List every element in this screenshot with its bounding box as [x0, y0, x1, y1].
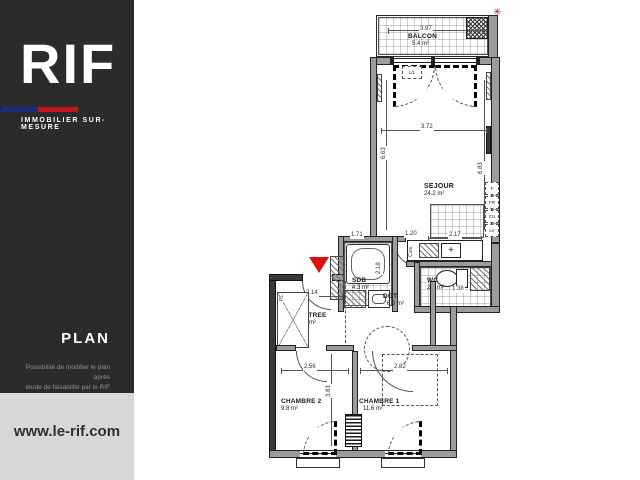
- partition-dashed: [345, 281, 346, 343]
- dim-chambre1-width: 2.82: [393, 364, 407, 371]
- wall-segment: [491, 243, 500, 313]
- website-url: www.le-rif.com: [0, 423, 134, 440]
- sidebar-footer: www.le-rif.com: [0, 393, 134, 480]
- room-area-dgt: 6.3 m²: [387, 301, 404, 307]
- room-label-chambre2: CHAMBRE 2: [281, 398, 321, 405]
- wall-segment: [370, 57, 377, 243]
- bay-window: [392, 58, 478, 63]
- counter-drainer: [419, 243, 439, 258]
- window-post: [476, 57, 480, 65]
- note-line-2: étude de faisabilité par le RIF: [25, 384, 110, 391]
- room-label-dgt: DGT: [383, 293, 397, 300]
- wall-segment: [269, 450, 457, 458]
- dim-sejour-width: 3.72: [420, 124, 434, 131]
- window-post: [390, 57, 394, 65]
- duct-hatch: [470, 267, 490, 291]
- wall-segment: [326, 345, 354, 351]
- flag-red-segment: [38, 107, 78, 112]
- page: RIF IMMOBILIER SUR-MESURE PLAN Possibili…: [0, 0, 640, 480]
- wall-segment: [450, 306, 457, 458]
- window-sill: [381, 458, 425, 468]
- wall-segment: [450, 306, 500, 313]
- wall-hatch: [377, 74, 382, 102]
- room-label-chambre1: CHAMBRE 1: [359, 398, 399, 405]
- room-area-chambre2: 9.8 m²: [281, 406, 298, 412]
- sidebar: RIF IMMOBILIER SUR-MESURE PLAN Possibili…: [0, 0, 134, 393]
- french-flag-stripe: [0, 107, 134, 112]
- north-indicator-icon: ✳: [493, 7, 501, 18]
- window-post: [431, 57, 435, 65]
- casement-swing-arc: [303, 421, 337, 455]
- dim-balcony-width: 3.97: [419, 26, 433, 33]
- wall-segment: [276, 345, 296, 351]
- flag-blue-segment: [0, 107, 38, 112]
- casement-swing-arc: [388, 421, 422, 455]
- dim-chambre2-width: 2.56: [303, 364, 317, 371]
- room-label-sdb: SDB: [352, 277, 366, 284]
- door-swing-arc: [435, 65, 477, 107]
- dim-line: [388, 30, 484, 31]
- kitchen-sink: +: [441, 243, 461, 258]
- dim-sejour-height-right: 6.83: [478, 161, 485, 175]
- wall-segment: [269, 274, 303, 281]
- dim-chambres-depth: 3.83: [326, 384, 333, 398]
- flag-white-segment: [0, 107, 2, 109]
- dim-line: [381, 130, 487, 131]
- note-line-1: Possibilité de modifier le plan après: [26, 364, 110, 381]
- appliance-frigo: FR: [485, 196, 499, 209]
- dim-wc-width: 1.38: [451, 286, 465, 293]
- appliance-cuisson: CU: [485, 210, 499, 223]
- dim-sdb-width: 1.71: [350, 232, 364, 239]
- disclaimer-note: Possibilité de modifier le plan après ét…: [10, 363, 110, 393]
- appliance-four: F: [485, 182, 499, 195]
- window-sill: [296, 458, 340, 468]
- washer-box: L/L: [402, 66, 422, 79]
- closet-label: PL: [280, 294, 286, 302]
- room-area-balcon: 5.4 m²: [412, 41, 429, 47]
- radiator: [345, 414, 362, 447]
- wall-segment: [412, 345, 457, 351]
- dim-sdb-depth: 2.18: [376, 261, 383, 275]
- room-label-balcon: BALCON: [408, 33, 437, 40]
- room-area-chambre1: 11.6 m²: [363, 406, 383, 412]
- wall-hatch: [486, 72, 491, 100]
- appliance-lave-vaisselle: LV: [485, 224, 499, 237]
- dim-hall-width: 1.20: [404, 231, 418, 238]
- dim-sejour-height-left: 6.63: [381, 146, 388, 160]
- wall-segment: [488, 15, 498, 59]
- section-title: PLAN: [61, 330, 110, 347]
- wall-segment: [269, 274, 276, 458]
- room-area-sejour: 24.2 m²: [424, 191, 444, 197]
- wall-segment: [430, 281, 436, 347]
- tagline: IMMOBILIER SUR-MESURE: [21, 117, 134, 131]
- room-label-sejour: SEJOUR: [424, 183, 454, 190]
- dim-kitchen-width: 2.17: [448, 232, 462, 239]
- entrance-arrow: [309, 257, 329, 273]
- neighbor-balcony-hatch: [466, 17, 488, 39]
- washbasin-unit: [344, 290, 366, 308]
- rif-logo: RIF: [20, 36, 116, 92]
